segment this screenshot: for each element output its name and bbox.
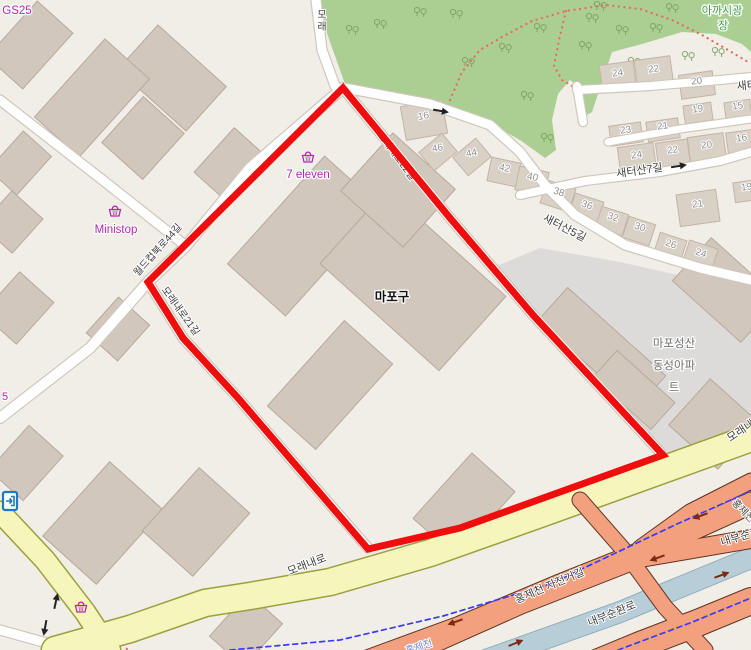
house-number: 21 (656, 120, 669, 133)
house-number: 22 (647, 63, 660, 76)
store-label-partial: 5 (2, 391, 8, 403)
entrance-icon (3, 492, 17, 510)
apartment-label: 트 (669, 382, 680, 394)
road-label: 모래 (317, 10, 326, 33)
house-number: 21 (691, 198, 704, 211)
house-number: 20 (700, 139, 713, 152)
ministop-store-label[interactable]: Ministop (95, 224, 138, 236)
map-canvas[interactable]: 모래내로22길월드컵북로44길모래내로21길새터산7길새터산5길새터산모래내로모… (0, 0, 751, 650)
apartment-label: 마포성산 (653, 337, 696, 350)
house-number: 23 (619, 124, 632, 137)
gs25-store-label[interactable]: GS25 (2, 5, 31, 17)
map-viewport[interactable]: 모래내로22길월드컵북로44길모래내로21길새터산7길새터산5길새터산모래내로모… (0, 0, 751, 650)
house-number: 15 (731, 100, 744, 113)
apartment-label: 동성아파 (653, 359, 696, 372)
house-number: 20 (690, 75, 703, 88)
district-label: 마포구 (375, 289, 410, 304)
house-number: 19 (691, 103, 704, 116)
house-number: 24 (611, 67, 624, 80)
house-number: 19 (740, 181, 751, 194)
park-name-label: 장 (718, 19, 728, 32)
house-number: 24 (630, 149, 643, 162)
park-name-label: 아까시광 (702, 4, 742, 17)
house-number: 16 (735, 132, 748, 145)
seven-eleven-store-label[interactable]: 7 eleven (286, 169, 329, 181)
house-number: 22 (666, 144, 679, 157)
